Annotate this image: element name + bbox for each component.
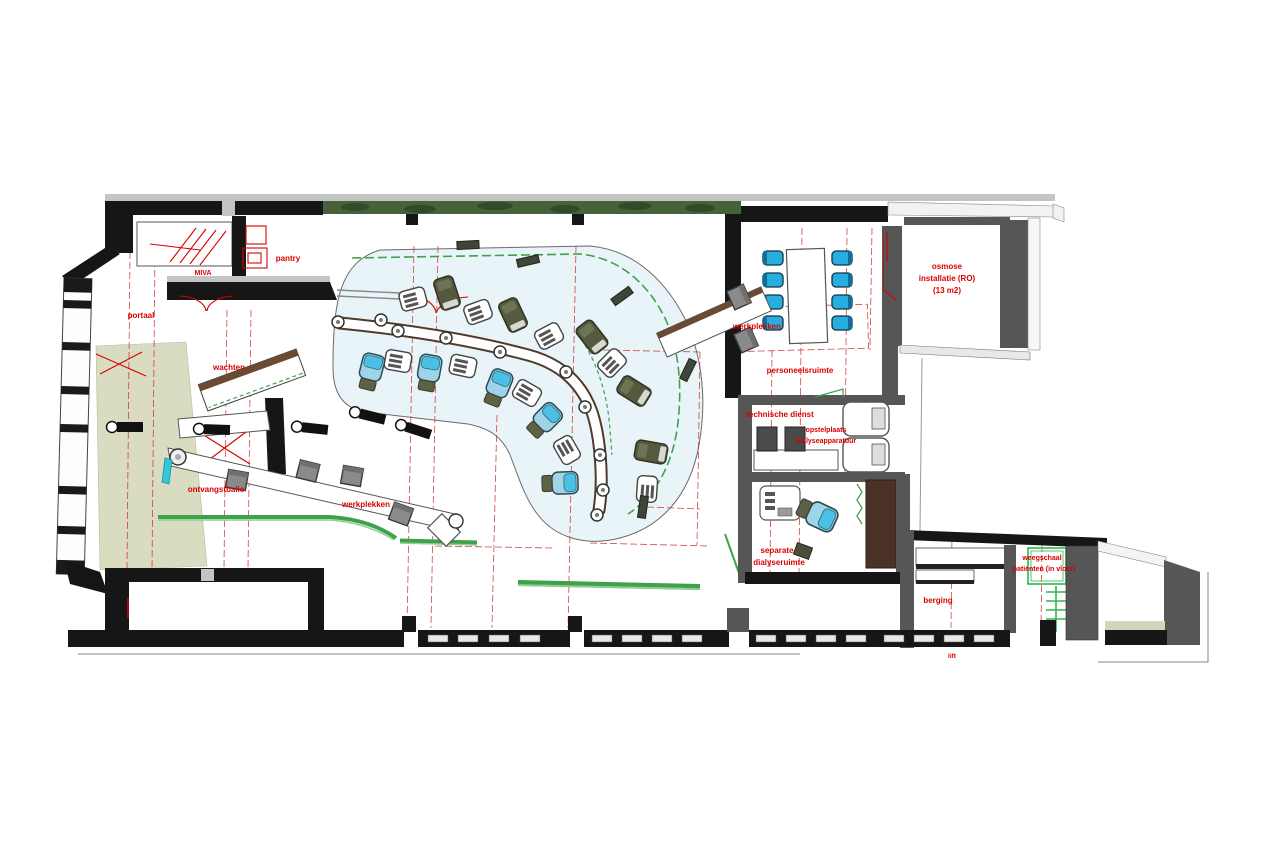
label-werkplekken-overleg: werkplekken — [732, 322, 781, 331]
wardrobe-cabinet — [866, 480, 896, 568]
label-portaal: portaal — [128, 311, 155, 320]
separate-room-south-wall — [745, 572, 910, 584]
label-osmose-1: osmose — [932, 262, 963, 271]
osmose-top-wall — [888, 202, 1055, 217]
label-miva: MIVA — [195, 270, 212, 277]
label-opstelplaats-1: opstelplaats — [806, 427, 847, 434]
reception-back-desk — [198, 349, 305, 411]
label-weegschaal-1: weegschaal — [1021, 555, 1061, 562]
stairs-room — [137, 222, 232, 266]
label-opstelplaats-2: dialyseapparatuur — [796, 438, 857, 445]
label-werkplekken-hal: werkplekken — [341, 500, 390, 509]
label-technische-dienst: technische dienst — [746, 410, 814, 419]
label-ontvangstbalie: ontvangstbalie — [188, 485, 245, 494]
conference-table — [786, 248, 827, 343]
lower-left-room — [68, 568, 324, 647]
desk-divider-wall — [265, 398, 286, 474]
pantry-fixtures — [243, 226, 267, 268]
label-berging: berging — [923, 596, 952, 605]
label-osmose-3: (13 m2) — [933, 286, 961, 295]
corridor-east-wall — [1164, 560, 1200, 645]
label-weegschaal-2: patiënten (in vloer) — [1013, 566, 1076, 573]
label-osmose-2: installatie (RO) — [919, 274, 976, 283]
separate-dialysis-room — [745, 474, 910, 584]
top-right-step — [1053, 204, 1064, 222]
label-wachten: wachten — [212, 363, 245, 372]
floor-plan-canvas: pantry MIVA portaal wachten ontvangstbal… — [0, 0, 1280, 860]
reception-chair — [170, 449, 186, 465]
label-personeelsruimte: personeelsruimte — [767, 366, 834, 375]
south-wing — [900, 358, 1208, 662]
hedge-strip — [323, 201, 741, 214]
label-separate-2: dialyseruimte — [753, 558, 805, 567]
osmose-room — [884, 218, 1040, 360]
label-pantry: pantry — [276, 254, 301, 263]
label-lift: lift — [948, 653, 957, 660]
right-rooms-west-wall — [738, 395, 752, 583]
label-separate-1: separate — [761, 546, 794, 555]
dialysis-machines-parked — [843, 402, 889, 472]
